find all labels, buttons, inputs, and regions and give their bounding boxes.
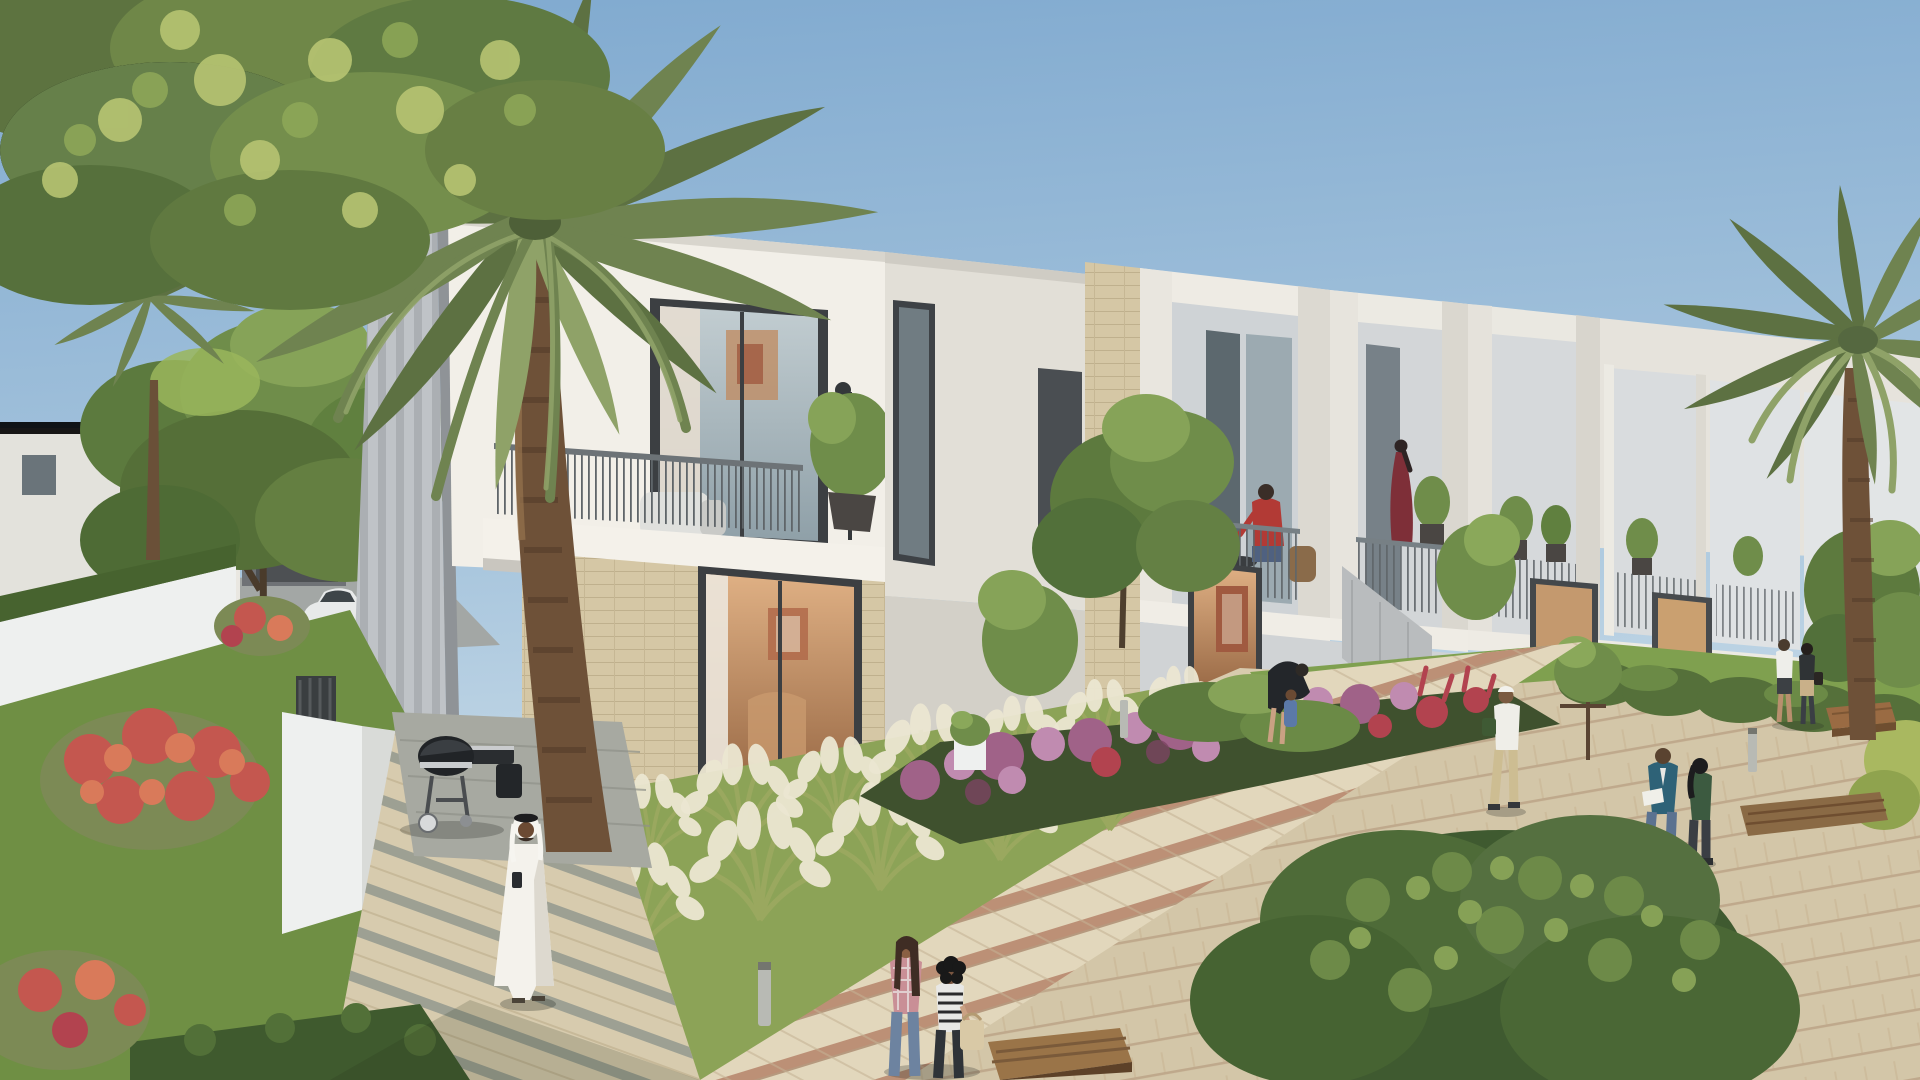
white-planter <box>950 711 990 770</box>
townhouse-community-render <box>0 0 1920 1080</box>
render-viewport <box>0 0 1920 1080</box>
